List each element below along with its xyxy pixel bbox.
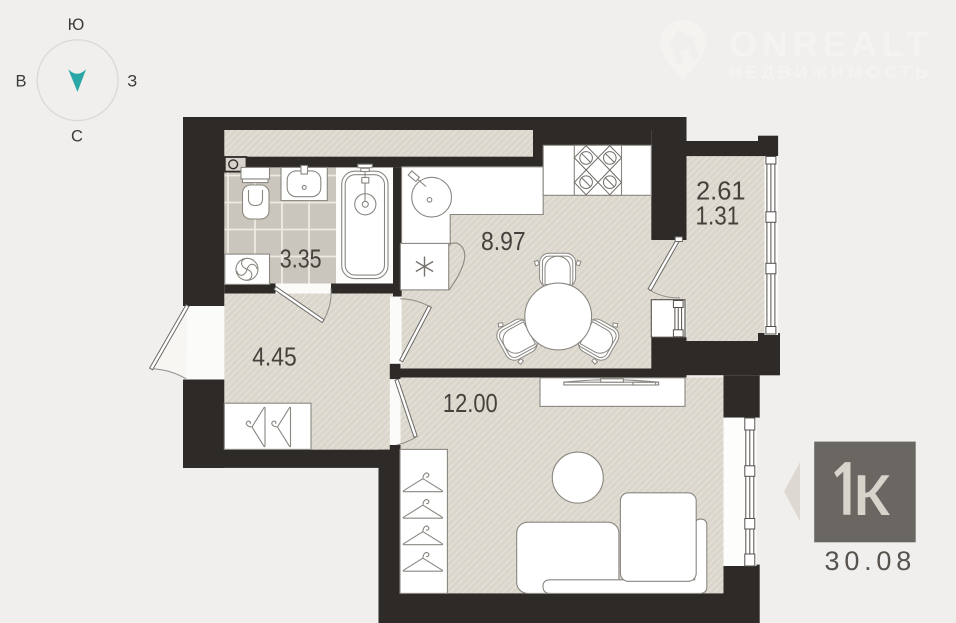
svg-text:8.97: 8.97 — [481, 226, 526, 256]
svg-text:Ю: Ю — [68, 16, 85, 34]
svg-text:З: З — [127, 73, 137, 91]
svg-text:12.00: 12.00 — [443, 388, 498, 418]
svg-text:В: В — [15, 73, 26, 91]
svg-text:С: С — [71, 128, 83, 146]
svg-text:к: к — [852, 447, 891, 531]
svg-text:4.45: 4.45 — [252, 341, 297, 371]
svg-text:3.35: 3.35 — [280, 243, 322, 273]
svg-text:1.31: 1.31 — [696, 201, 740, 231]
svg-text:30.08: 30.08 — [825, 546, 917, 576]
